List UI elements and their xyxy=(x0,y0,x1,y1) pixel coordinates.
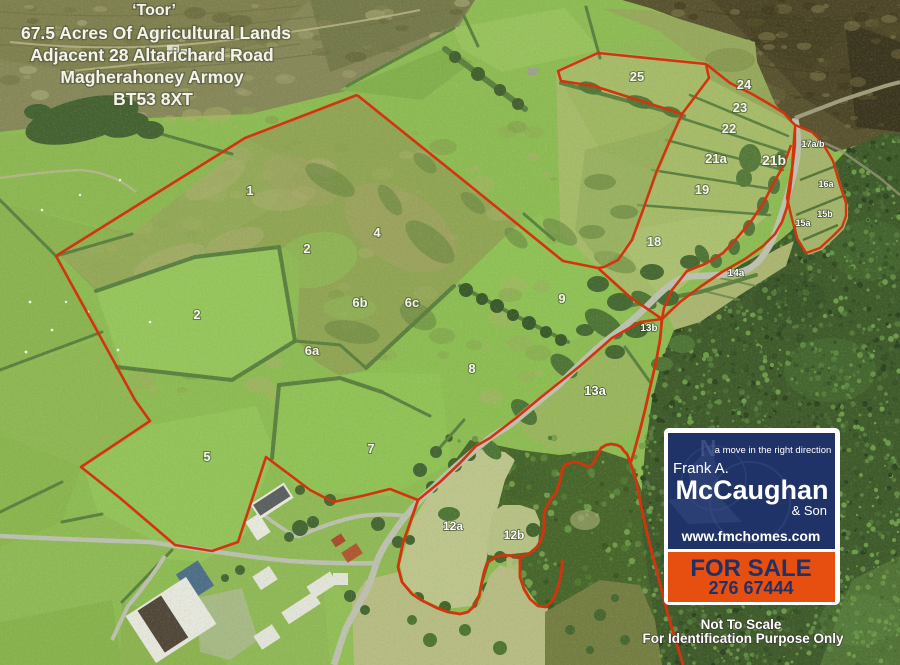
svg-text:4: 4 xyxy=(373,225,381,240)
svg-text:1: 1 xyxy=(246,183,253,198)
svg-text:67.5 Acres Of Agricultural Lan: 67.5 Acres Of Agricultural Lands xyxy=(21,23,291,43)
svg-text:Adjacent 28 Altarichard Road: Adjacent 28 Altarichard Road xyxy=(30,45,273,65)
svg-text:& Son: & Son xyxy=(792,503,827,518)
svg-text:18: 18 xyxy=(647,234,661,249)
svg-text:276 67444: 276 67444 xyxy=(708,578,793,598)
svg-text:‘Toor’: ‘Toor’ xyxy=(132,2,176,19)
svg-text:2: 2 xyxy=(303,241,310,256)
svg-text:25: 25 xyxy=(630,69,644,84)
svg-text:BT53 8XT: BT53 8XT xyxy=(113,89,193,109)
svg-text:7: 7 xyxy=(367,441,374,456)
svg-text:8: 8 xyxy=(468,361,475,376)
svg-text:12b: 12b xyxy=(504,528,525,542)
svg-text:Magherahoney Armoy: Magherahoney Armoy xyxy=(60,67,243,87)
svg-text:2: 2 xyxy=(193,307,200,322)
svg-text:Not To Scale: Not To Scale xyxy=(701,617,782,632)
svg-text:5: 5 xyxy=(203,449,210,464)
svg-text:17a/b: 17a/b xyxy=(801,139,825,149)
svg-text:16a: 16a xyxy=(818,179,834,189)
svg-text:McCaughan: McCaughan xyxy=(675,475,828,505)
svg-text:19: 19 xyxy=(695,182,709,197)
svg-text:6a: 6a xyxy=(305,343,320,358)
svg-text:15b: 15b xyxy=(817,209,833,219)
svg-text:6b: 6b xyxy=(352,295,367,310)
svg-text:13a: 13a xyxy=(584,383,606,398)
svg-text:15a: 15a xyxy=(795,218,811,228)
svg-text:14a: 14a xyxy=(728,268,745,279)
svg-text:23: 23 xyxy=(733,100,747,115)
svg-text:13b: 13b xyxy=(640,323,657,334)
svg-text:www.fmchomes.com: www.fmchomes.com xyxy=(681,528,821,544)
svg-text:24: 24 xyxy=(737,77,752,92)
svg-text:a move in the right direction: a move in the right direction xyxy=(715,445,832,456)
svg-text:9: 9 xyxy=(558,291,565,306)
svg-text:For Identification Purpose Onl: For Identification Purpose Only xyxy=(642,631,844,646)
svg-text:21a: 21a xyxy=(705,151,727,166)
svg-text:22: 22 xyxy=(722,121,736,136)
svg-text:6c: 6c xyxy=(405,295,419,310)
svg-text:21b: 21b xyxy=(762,152,786,168)
svg-text:12a: 12a xyxy=(443,519,463,533)
